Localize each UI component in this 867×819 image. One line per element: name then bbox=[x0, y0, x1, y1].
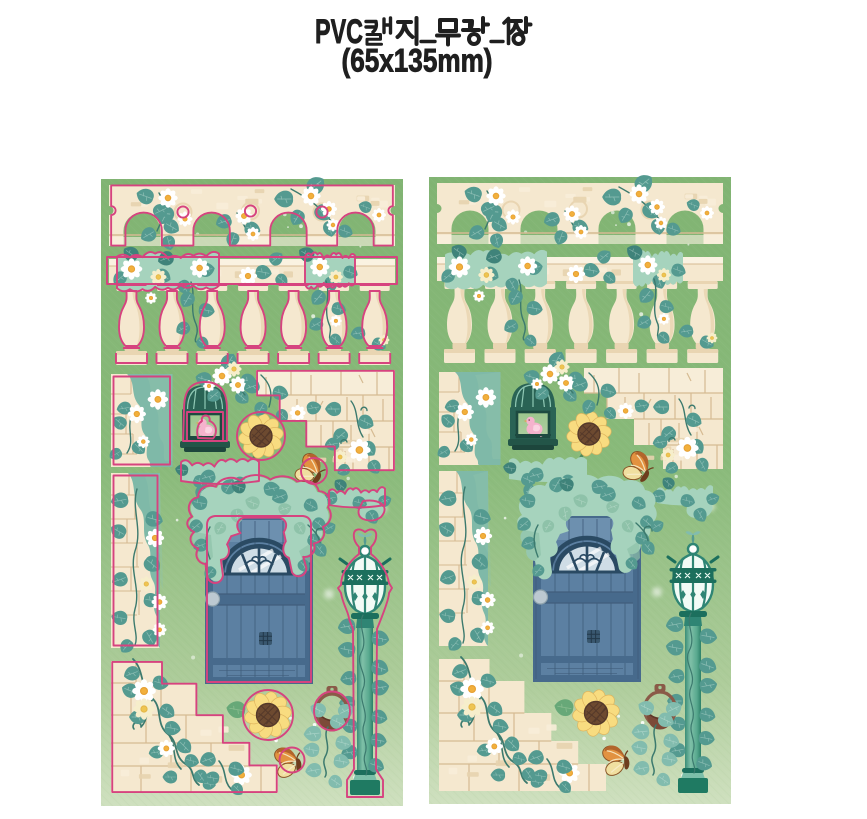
svg-text:(65x135mm): (65x135mm) bbox=[342, 43, 493, 79]
